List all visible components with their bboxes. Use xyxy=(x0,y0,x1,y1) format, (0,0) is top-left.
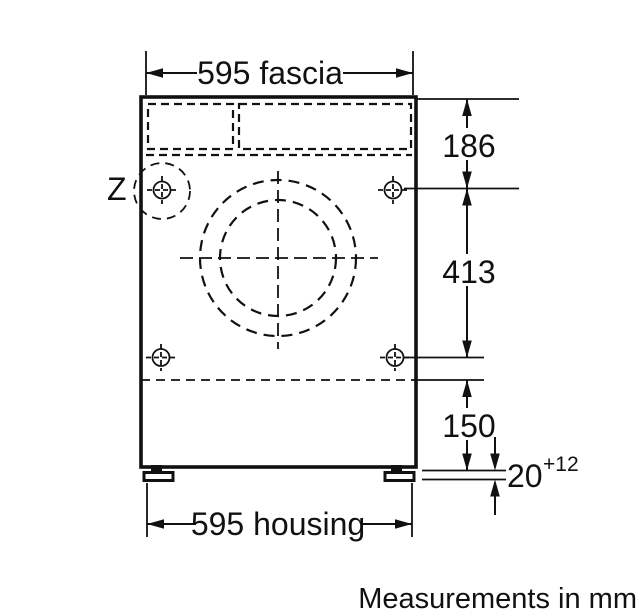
dimension-label-tolerance: +12 xyxy=(543,453,579,476)
dimension-label-150: 150 xyxy=(442,408,495,444)
dimension-label-186: 186 xyxy=(442,128,495,164)
dimension-label-housing: 595 housing xyxy=(191,506,365,542)
dimension-label-fascia: 595 fascia xyxy=(197,55,343,91)
dimension-label-20: 20 xyxy=(507,458,543,494)
installation-drawing-page: Z 595 fascia xyxy=(0,0,640,616)
detail-z-label: Z xyxy=(107,171,127,207)
measurements-note: Measurements in mm xyxy=(358,583,637,615)
washing-machine-installation-diagram: Z 595 fascia xyxy=(0,0,640,616)
appliance-front-view: Z xyxy=(107,97,416,481)
dimension-label-413: 413 xyxy=(442,254,495,290)
appliance-body-outline xyxy=(141,97,416,467)
